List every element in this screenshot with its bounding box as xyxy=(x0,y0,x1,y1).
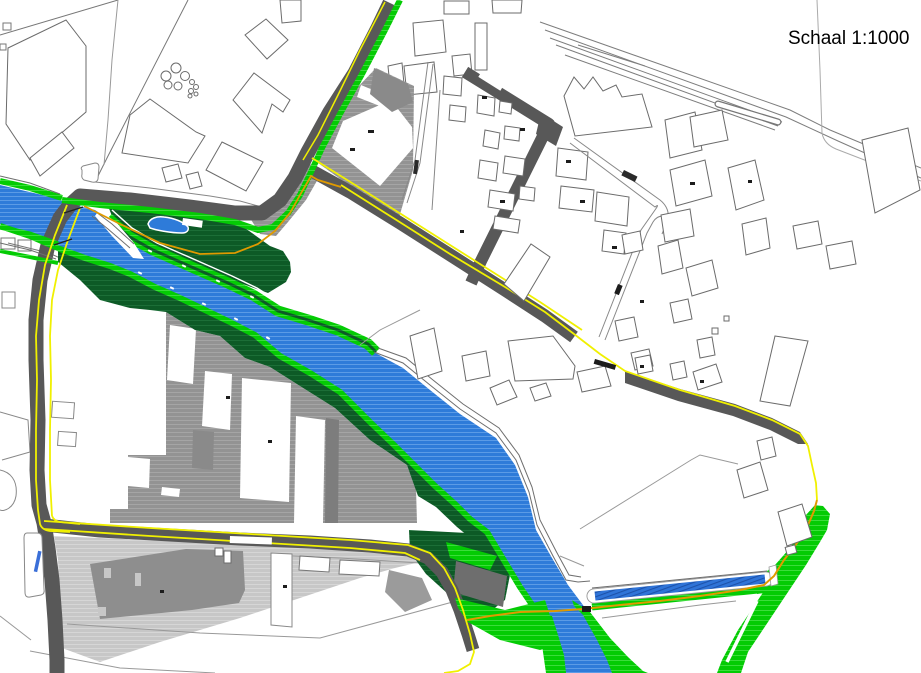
svg-text:Schaal 1:1000: Schaal 1:1000 xyxy=(788,28,910,49)
